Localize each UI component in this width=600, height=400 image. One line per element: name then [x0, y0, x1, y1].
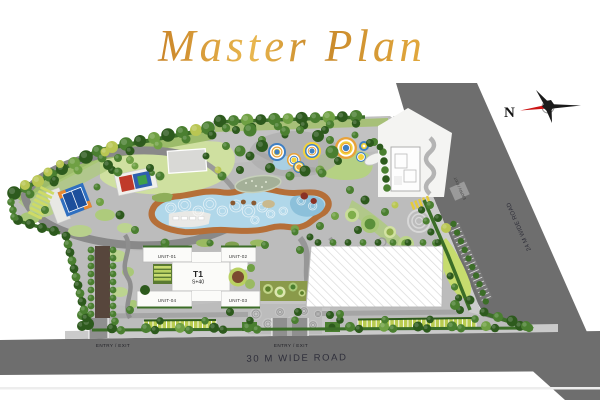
svg-text:UNIT-02: UNIT-02	[229, 254, 248, 259]
svg-text:ENTRY / EXIT: ENTRY / EXIT	[96, 343, 130, 348]
svg-text:S+40: S+40	[192, 280, 204, 286]
svg-text:Master Plan: Master Plan	[157, 21, 426, 71]
svg-text:ENTRY / EXIT: ENTRY / EXIT	[274, 343, 308, 348]
svg-text:30 M WIDE ROAD: 30 M WIDE ROAD	[246, 352, 347, 364]
svg-text:UNIT-01: UNIT-01	[158, 254, 177, 259]
svg-text:N: N	[504, 105, 515, 121]
svg-text:UNIT-03: UNIT-03	[229, 298, 248, 303]
svg-text:T1: T1	[193, 269, 203, 279]
svg-text:UNIT-04: UNIT-04	[158, 298, 177, 303]
